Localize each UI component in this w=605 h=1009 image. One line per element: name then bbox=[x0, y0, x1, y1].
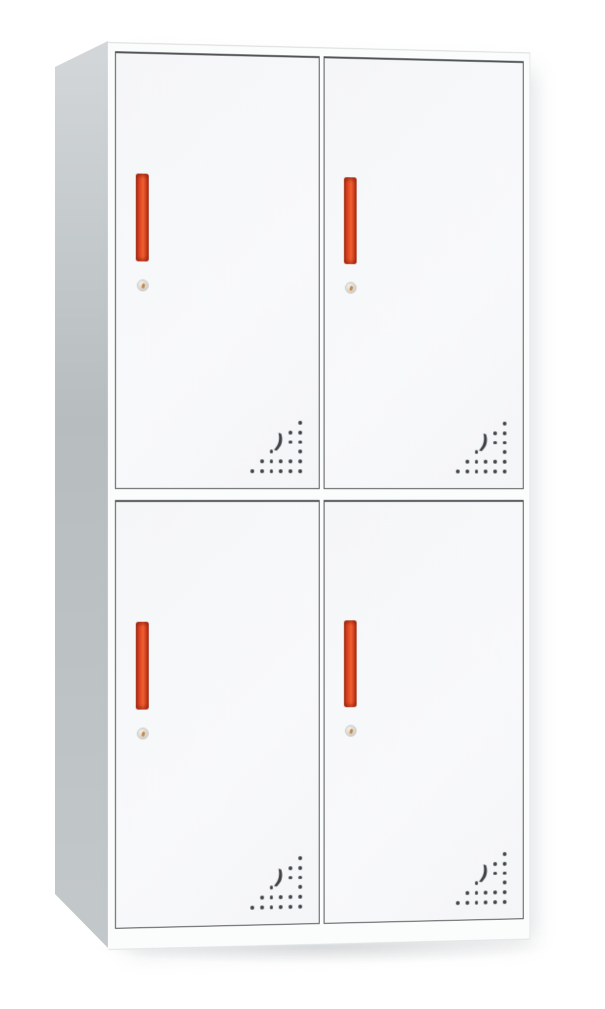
vent-hole bbox=[298, 885, 302, 889]
vent-hole bbox=[279, 469, 283, 473]
vent-hole bbox=[260, 459, 264, 463]
vent-hole bbox=[298, 876, 302, 880]
vent-hole bbox=[503, 441, 507, 445]
vent-hole bbox=[503, 890, 507, 894]
vent-hole bbox=[503, 450, 507, 454]
vent-hole bbox=[493, 470, 497, 474]
vent-hole bbox=[270, 460, 274, 464]
vent-hole bbox=[456, 470, 460, 474]
keyhole bbox=[137, 727, 149, 739]
vent-hole bbox=[484, 470, 488, 474]
vent-hole bbox=[503, 422, 507, 426]
keyhole-pin bbox=[141, 731, 145, 737]
vent-hole bbox=[503, 900, 507, 904]
vent-hole bbox=[289, 469, 293, 473]
vent-hole bbox=[298, 421, 302, 425]
vent-crescent: ) bbox=[272, 431, 286, 452]
vent-hole bbox=[260, 905, 264, 909]
locker-door-bottom-right: ) bbox=[324, 500, 524, 924]
keyhole bbox=[345, 282, 357, 294]
door-handle bbox=[136, 173, 149, 261]
vent-hole bbox=[503, 862, 507, 866]
vent-hole bbox=[270, 905, 274, 909]
vent-hole bbox=[289, 895, 293, 899]
keyhole bbox=[345, 725, 357, 737]
keyhole-pin bbox=[349, 729, 353, 735]
vent-crescent: ) bbox=[478, 432, 491, 453]
vent-hole bbox=[484, 891, 488, 895]
side-panel-left bbox=[55, 41, 108, 948]
locker-door-top-right: ) bbox=[324, 56, 524, 489]
vent-pattern: ) bbox=[248, 419, 307, 479]
vent-hole bbox=[456, 901, 460, 905]
vent-hole bbox=[298, 905, 302, 909]
vent-hole bbox=[493, 900, 497, 904]
doors-area: )))) bbox=[115, 51, 524, 929]
locker-door-top-left: ) bbox=[115, 51, 320, 489]
vent-hole bbox=[465, 891, 469, 895]
vent-hole bbox=[298, 895, 302, 899]
vent-hole bbox=[503, 871, 507, 875]
vent-hole bbox=[475, 460, 479, 464]
door-handle bbox=[344, 177, 357, 264]
vent-hole bbox=[279, 895, 283, 899]
vent-hole bbox=[298, 856, 302, 860]
vent-hole bbox=[289, 430, 293, 434]
vent-hole bbox=[475, 470, 479, 474]
vent-hole bbox=[493, 862, 497, 866]
product-photo: )))) bbox=[0, 0, 605, 1009]
vent-hole bbox=[503, 881, 507, 885]
vent-hole bbox=[250, 469, 254, 473]
vent-hole bbox=[484, 900, 488, 904]
vent-hole bbox=[484, 460, 488, 464]
vent-pattern: ) bbox=[454, 850, 511, 910]
vent-hole bbox=[465, 901, 469, 905]
vent-crescent: ) bbox=[478, 862, 491, 883]
vent-hole bbox=[289, 866, 293, 870]
vent-hole bbox=[493, 441, 497, 445]
vent-hole bbox=[279, 460, 283, 464]
vent-hole bbox=[260, 469, 264, 473]
vent-hole bbox=[503, 852, 507, 856]
vent-hole bbox=[289, 440, 293, 444]
vent-hole bbox=[493, 431, 497, 435]
vent-hole bbox=[270, 896, 274, 900]
vent-hole bbox=[465, 470, 469, 474]
vent-pattern: ) bbox=[454, 419, 511, 478]
vent-hole bbox=[475, 891, 479, 895]
vent-hole bbox=[493, 871, 497, 875]
vent-hole bbox=[250, 906, 254, 910]
vent-hole bbox=[298, 866, 302, 870]
vent-hole bbox=[503, 460, 507, 464]
vent-hole bbox=[289, 876, 293, 880]
vent-pattern: ) bbox=[248, 854, 307, 915]
vent-hole bbox=[260, 896, 264, 900]
vent-hole bbox=[475, 901, 479, 905]
door-handle bbox=[136, 622, 149, 710]
locker-door-bottom-left: ) bbox=[115, 500, 320, 929]
vent-hole bbox=[493, 891, 497, 895]
locker-cabinet: )))) bbox=[0, 0, 605, 1009]
vent-hole bbox=[289, 905, 293, 909]
vent-hole bbox=[270, 469, 274, 473]
vent-hole bbox=[298, 430, 302, 434]
vent-hole bbox=[279, 905, 283, 909]
vent-hole bbox=[503, 470, 507, 474]
vent-crescent: ) bbox=[272, 867, 286, 888]
vent-hole bbox=[298, 460, 302, 464]
door-handle bbox=[344, 620, 357, 707]
vent-hole bbox=[503, 431, 507, 435]
vent-hole bbox=[465, 460, 469, 464]
keyhole-pin bbox=[349, 285, 353, 291]
vent-hole bbox=[493, 460, 497, 464]
keyhole-pin bbox=[141, 283, 145, 289]
keyhole bbox=[137, 279, 149, 291]
vent-hole bbox=[289, 460, 293, 464]
vent-hole bbox=[298, 450, 302, 454]
front-face: )))) bbox=[108, 42, 530, 950]
vent-hole bbox=[298, 469, 302, 473]
vent-hole bbox=[298, 440, 302, 444]
